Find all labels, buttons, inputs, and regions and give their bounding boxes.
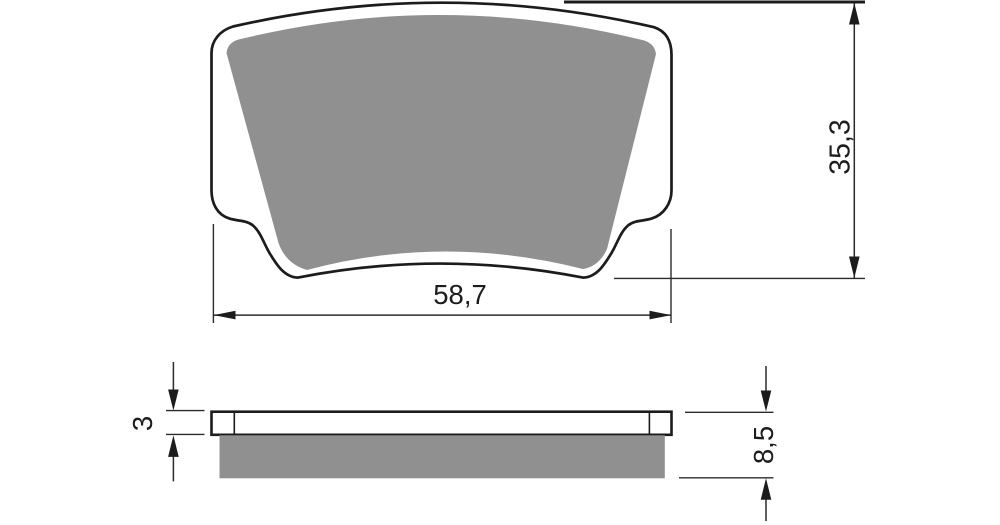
svg-text:58,7: 58,7 [433,279,487,310]
svg-text:35,3: 35,3 [825,119,857,174]
svg-text:3: 3 [127,416,158,431]
svg-text:8,5: 8,5 [748,426,779,464]
